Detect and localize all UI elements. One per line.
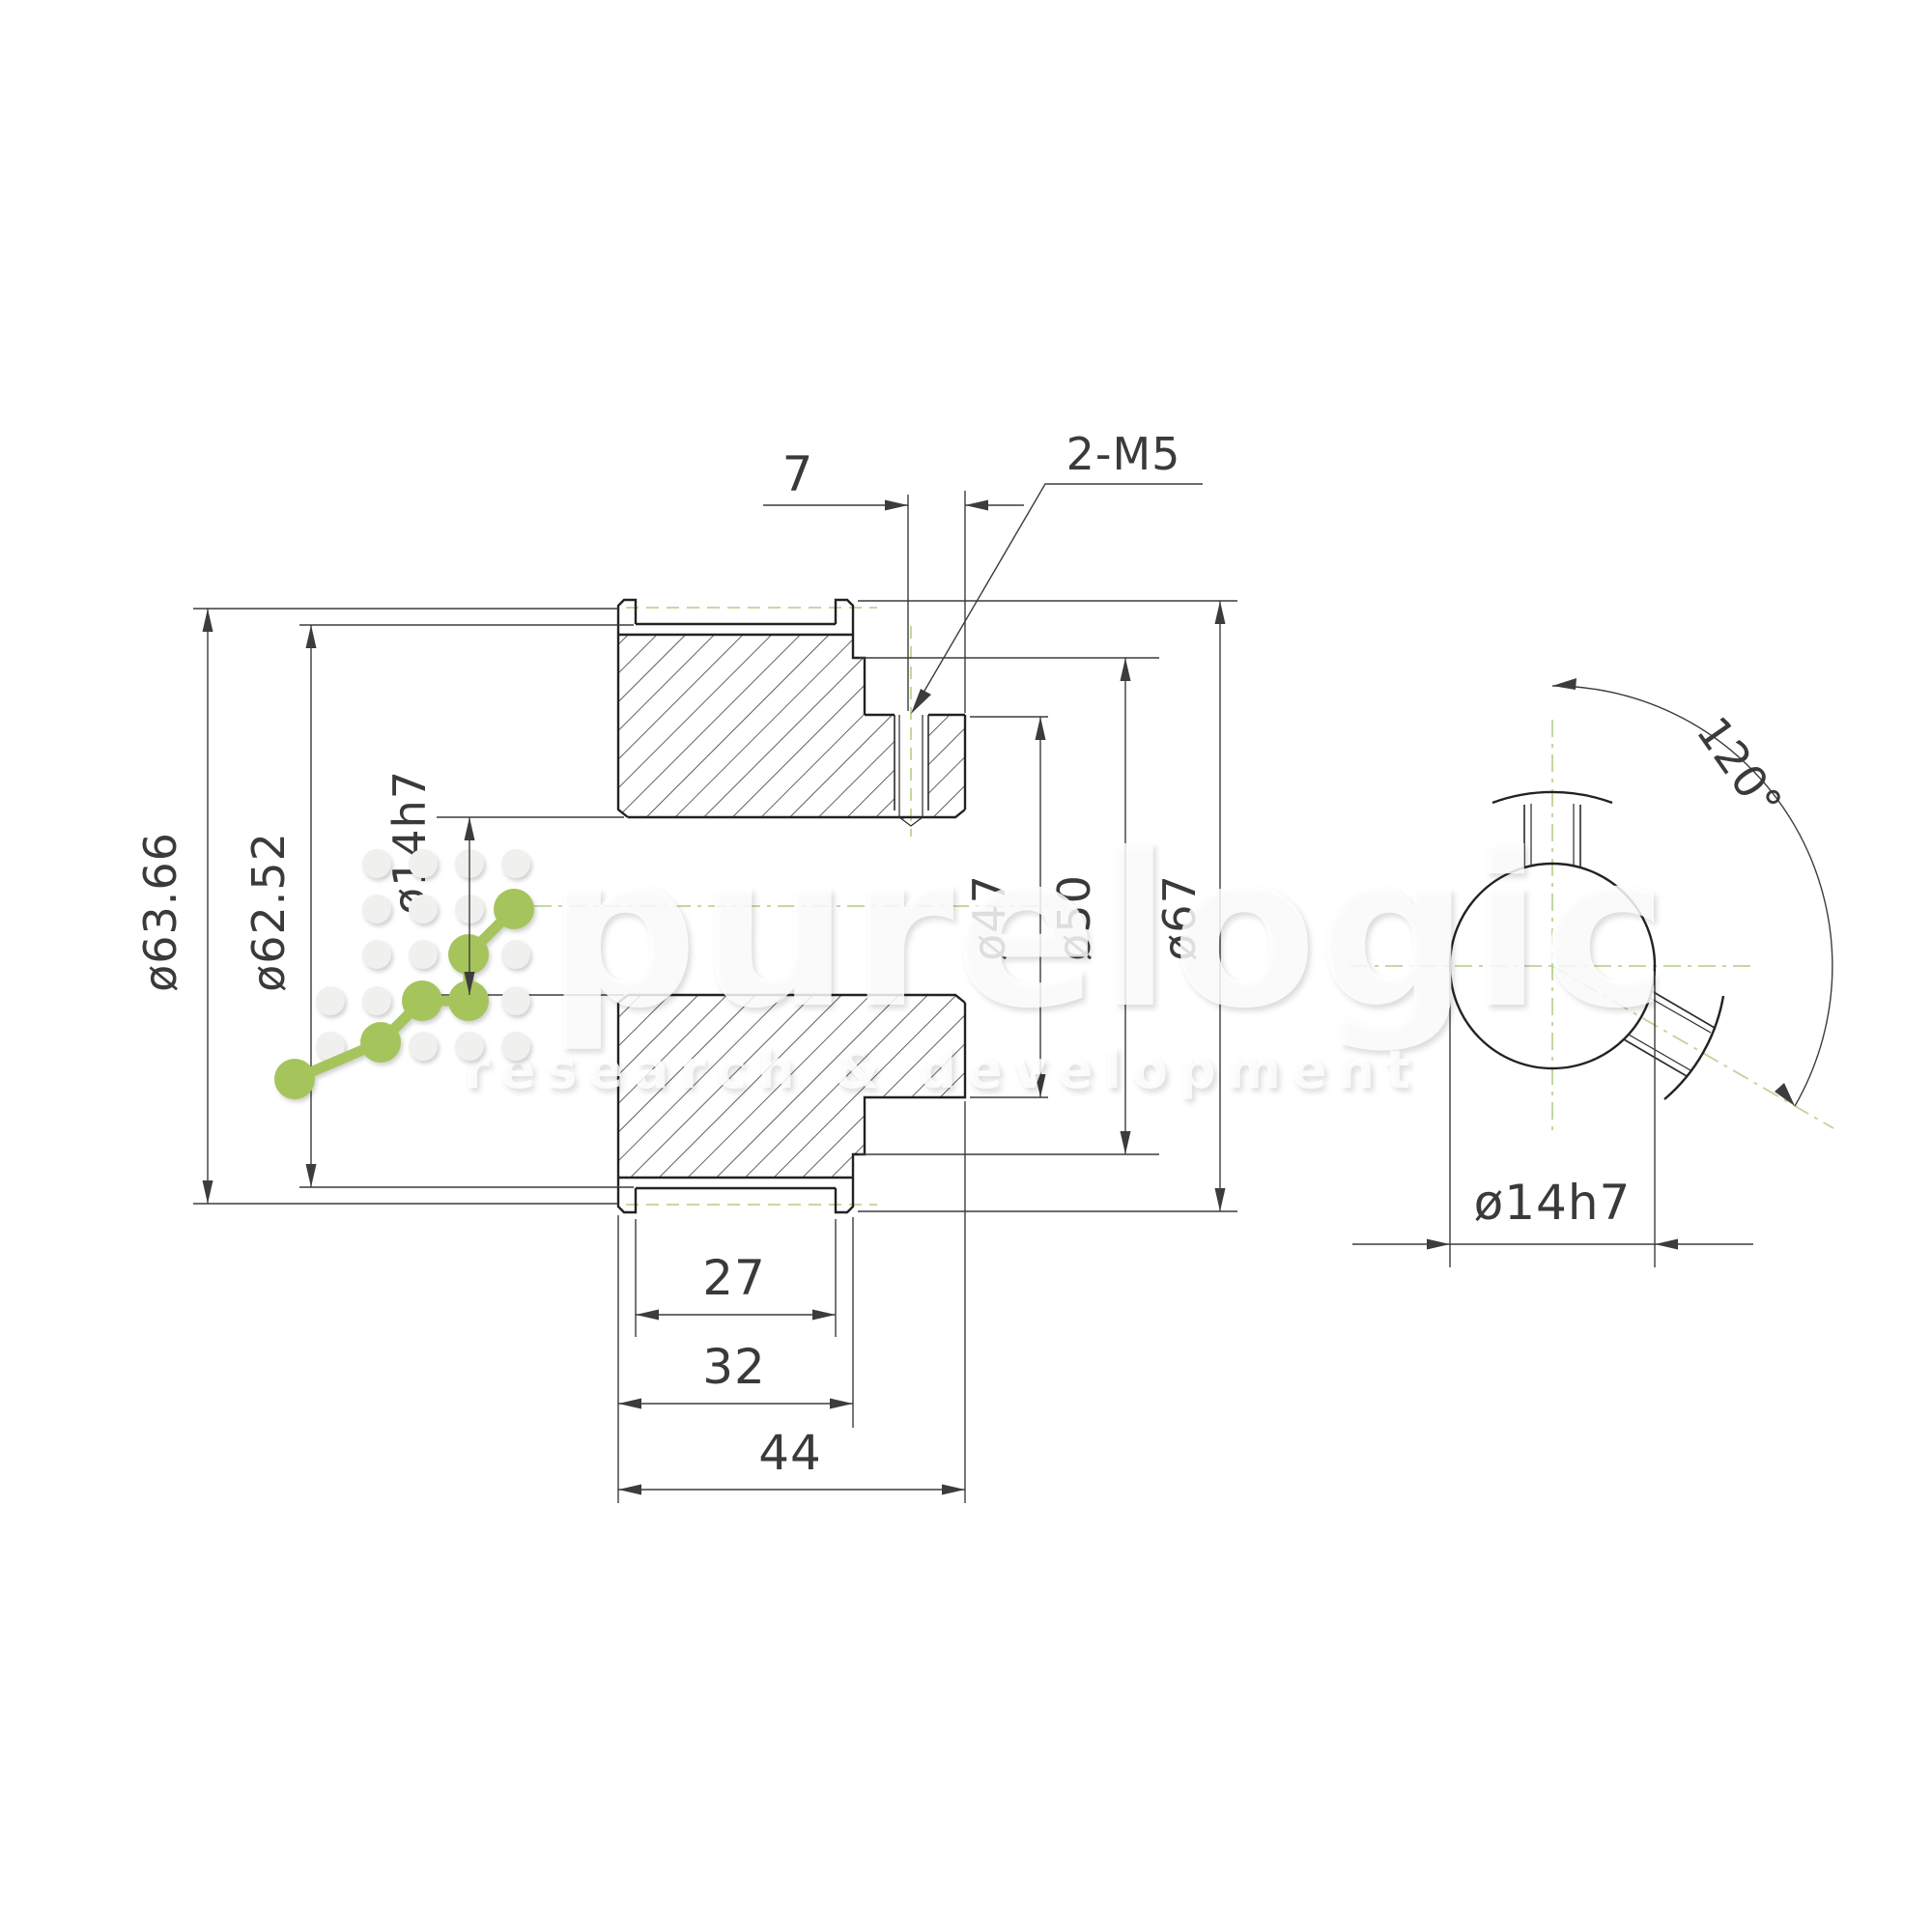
dim-total-width-label: 44 <box>758 1425 822 1481</box>
dim-holes-label: 2-M5 <box>1066 428 1181 480</box>
dim-offset-label: 7 <box>782 446 814 502</box>
watermark-brand-text: purelogic <box>546 808 1668 1055</box>
dim-screw-angle-label: 120° <box>1687 707 1793 828</box>
dim-belt-width-label: 27 <box>702 1250 766 1306</box>
dim-outside-diameter-label: ø62.52 <box>242 832 295 992</box>
watermark-tagline-text: research & development <box>464 1039 1421 1100</box>
pulley-drawing-svg: 7 2-M5 ø63.66 ø62.52 ø14h7 <box>0 0 1932 1932</box>
dim-width-over-flanges-label: 32 <box>702 1339 766 1395</box>
dim-pitch-diameter-label: ø63.66 <box>134 832 186 992</box>
technical-drawing-canvas: 7 2-M5 ø63.66 ø62.52 ø14h7 <box>0 0 1932 1932</box>
watermark: purelogic research & development <box>464 808 1668 1100</box>
dim-bore-label-main: ø14h7 <box>384 770 436 915</box>
dim-bore-label-side: ø14h7 <box>1474 1175 1632 1231</box>
upper-hatch-region <box>618 635 965 826</box>
